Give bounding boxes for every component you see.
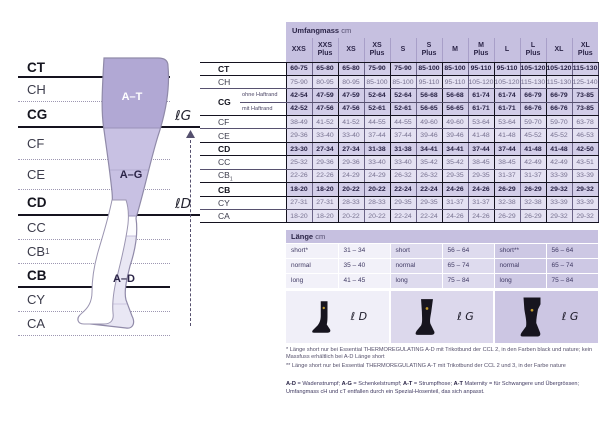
knee-sock-icon: [308, 299, 338, 335]
umfang-value: 29-35: [390, 196, 416, 209]
umfang-value: 43-51: [572, 156, 598, 169]
laenge-value: 56 – 64: [442, 243, 494, 258]
size-chart-page: CTCHCGCFCECDCCCB1CBCYCA A–T: [0, 0, 600, 424]
row-label-ct: CT: [200, 62, 286, 75]
laenge-value: 35 – 40: [338, 258, 390, 273]
footnote: ** Länge short nur bei Essential THERMOR…: [286, 363, 594, 370]
umfang-value: 29-32: [572, 210, 598, 223]
laenge-title: Länge cm: [286, 230, 598, 243]
umfang-value: 37-44: [364, 129, 390, 142]
umfang-value: 34-41: [416, 142, 442, 155]
row-label-cf: CF: [200, 116, 286, 129]
umfang-value: 66-76: [520, 102, 546, 115]
umfang-value: 37-44: [390, 129, 416, 142]
row-label-cy: CY: [200, 196, 286, 209]
haftrand-variant: mit Haftrand: [240, 102, 286, 115]
umfang-value: 44-55: [364, 116, 390, 129]
umfang-value: 49-60: [416, 116, 442, 129]
laenge-value: 75 – 84: [442, 273, 494, 288]
ad-region-label: A–D: [113, 273, 135, 285]
laenge-value: 65 – 74: [546, 258, 598, 273]
umfang-value: 41-52: [312, 116, 338, 129]
umfang-value: 33-39: [546, 169, 572, 183]
umfang-value: 26-29: [520, 183, 546, 196]
umfang-value: 29-32: [546, 183, 572, 196]
laenge-label: normal: [390, 258, 442, 273]
umfang-value: 24-26: [442, 210, 468, 223]
umfang-value: 45-52: [520, 129, 546, 142]
laenge-table: Länge cmshort*31 – 34short56 – 64short**…: [286, 230, 598, 289]
umfang-value: 41-48: [546, 142, 572, 155]
umfang-value: 80-95: [312, 75, 338, 88]
row-label-ch: CH: [200, 75, 286, 88]
umfang-value: 85-100: [442, 62, 468, 75]
row-label-cd: CD: [200, 142, 286, 155]
umfang-value: 24-26: [468, 210, 494, 223]
umfang-value: 28-33: [364, 196, 390, 209]
umfang-value: 73-85: [572, 89, 598, 102]
umfang-value: 31-37: [468, 196, 494, 209]
umfang-value: 33-40: [364, 156, 390, 169]
laenge-value: 75 – 84: [546, 273, 598, 288]
umfang-value: 27-31: [286, 196, 312, 209]
umfang-value: 29-32: [572, 183, 598, 196]
umfang-value: 85-100: [364, 75, 390, 88]
umfang-value: 75-90: [364, 62, 390, 75]
umfang-value: 29-36: [338, 156, 364, 169]
umfang-value: 61-74: [468, 89, 494, 102]
umfang-value: 52-61: [364, 102, 390, 115]
footer-segment: A-T: [454, 381, 463, 387]
row-label-cc: CC: [200, 156, 286, 169]
row-label-cb: CB: [200, 183, 286, 196]
umfang-value: 65-80: [312, 62, 338, 75]
umfang-value: 95-110: [442, 75, 468, 88]
thigh-sock-icon: [410, 297, 444, 337]
umfang-value: 66-79: [546, 89, 572, 102]
footer-segment: A-D: [286, 381, 296, 387]
umfang-value: 18-20: [286, 183, 312, 196]
laenge-value: 31 – 34: [338, 243, 390, 258]
umfang-value: 24-26: [468, 183, 494, 196]
umfang-value: 45-52: [546, 129, 572, 142]
umfang-value: 33-40: [312, 129, 338, 142]
length-box-ag: ℓ G: [391, 291, 494, 343]
umfang-value: 42-52: [286, 102, 312, 115]
umfang-value: 29-32: [546, 210, 572, 223]
umfang-value: 24-29: [338, 169, 364, 183]
umfang-value: 37-44: [468, 142, 494, 155]
row-label-cb1: CB1: [200, 169, 286, 183]
umfang-value: 22-26: [286, 169, 312, 183]
umfang-value: 35-42: [416, 156, 442, 169]
umfang-value: 95-110: [416, 75, 442, 88]
footer-segment: = Schenkelstrumpf;: [352, 381, 403, 387]
size-header-xxs-plus: XXSPlus: [312, 38, 338, 62]
umfang-value: 25-32: [286, 156, 312, 169]
laenge-label: short**: [494, 243, 546, 258]
umfang-value: 41-48: [468, 129, 494, 142]
umfang-value: 42-49: [520, 156, 546, 169]
size-header-xs: XS: [338, 38, 364, 62]
size-header-s: S: [390, 38, 416, 62]
length-dash-line: [190, 140, 191, 326]
umfang-value: 20-22: [338, 183, 364, 196]
umfang-value: 41-52: [338, 116, 364, 129]
length-box-at: ℓ G: [495, 291, 598, 343]
umfang-value: 125-140: [572, 75, 598, 88]
umfang-value: 27-31: [312, 196, 338, 209]
umfang-value: 32-38: [494, 196, 520, 209]
length-box-ag-label: ℓ G: [457, 310, 474, 323]
size-header-s-plus: SPlus: [416, 38, 442, 62]
umfang-value: 85-100: [416, 62, 442, 75]
umfang-value: 38-45: [494, 156, 520, 169]
size-header-l: L: [494, 38, 520, 62]
footnote: * Länge short nur bei Essential THERMORE…: [286, 347, 594, 362]
umfang-value: 42-50: [572, 142, 598, 155]
umfang-value: 53-64: [494, 116, 520, 129]
umfang-value: 20-22: [338, 210, 364, 223]
umfang-value: 44-55: [390, 116, 416, 129]
size-header-l-plus: LPlus: [520, 38, 546, 62]
umfang-value: 66-76: [546, 102, 572, 115]
umfang-value: 59-70: [546, 116, 572, 129]
umfang-title: Umfangmass cm: [286, 22, 598, 38]
row-label-ce: CE: [200, 129, 286, 142]
umfang-value: 29-35: [468, 169, 494, 183]
umfang-value: 33-40: [390, 156, 416, 169]
umfang-value: 75-90: [286, 75, 312, 88]
size-header-xl: XL: [546, 38, 572, 62]
footnotes: * Länge short nur bei Essential THERMORE…: [286, 347, 594, 370]
umfang-table: Umfangmass cmXXSXXSPlusXSXSPlusSSPlusMMP…: [200, 22, 599, 223]
umfang-value: 18-20: [312, 183, 338, 196]
umfang-value: 115-130: [520, 75, 546, 88]
size-header-xs-plus: XSPlus: [364, 38, 390, 62]
umfang-value: 47-56: [338, 102, 364, 115]
umfang-value: 31-37: [494, 169, 520, 183]
umfang-value: 63-78: [572, 116, 598, 129]
umfang-table-host: Umfangmass cmXXSXXSPlusXSXSPlusSSPlusMMP…: [200, 22, 598, 223]
umfang-value: 56-65: [442, 102, 468, 115]
umfang-value: 85-100: [390, 75, 416, 88]
umfang-value: 24-26: [442, 183, 468, 196]
umfang-value: 31-38: [390, 142, 416, 155]
umfang-value: 105-120: [546, 62, 572, 75]
umfang-value: 39-46: [442, 129, 468, 142]
umfang-value: 20-22: [364, 210, 390, 223]
umfang-value: 52-64: [364, 89, 390, 102]
umfang-value: 38-45: [468, 156, 494, 169]
length-box-at-label: ℓ G: [562, 310, 579, 323]
umfang-value: 49-60: [442, 116, 468, 129]
umfang-value: 61-71: [494, 102, 520, 115]
umfang-value: 29-35: [442, 169, 468, 183]
laenge-value: 56 – 64: [546, 243, 598, 258]
umfang-value: 33-40: [338, 129, 364, 142]
umfang-value: 46-53: [572, 129, 598, 142]
umfang-value: 47-59: [312, 89, 338, 102]
umfang-value: 31-38: [364, 142, 390, 155]
footer-segment: = Strumpfhose;: [412, 381, 453, 387]
tables-column: Umfangmass cmXXSXXSPlusXSXSPlusSSPlusMMP…: [200, 0, 598, 371]
at-region-label: A–T: [122, 91, 143, 103]
umfang-value: 56-65: [416, 102, 442, 115]
leg-measurement-diagram: CTCHCGCFCECDCCCB1CBCYCA A–T: [18, 58, 214, 348]
umfang-value: 39-46: [416, 129, 442, 142]
size-header-m-plus: MPlus: [468, 38, 494, 62]
umfang-value: 26-29: [494, 210, 520, 223]
umfang-value: 34-41: [442, 142, 468, 155]
umfang-value: 61-71: [468, 102, 494, 115]
laenge-label: long: [390, 273, 442, 288]
umfang-value: 75-90: [390, 62, 416, 75]
laenge-label: long: [494, 273, 546, 288]
umfang-value: 29-35: [416, 196, 442, 209]
row-label-cg: CG: [200, 89, 240, 116]
umfang-value: 31-37: [520, 169, 546, 183]
umfang-value: 22-24: [390, 210, 416, 223]
umfang-value: 61-74: [494, 89, 520, 102]
umfang-value: 27-34: [312, 142, 338, 155]
umfang-value: 33-39: [572, 196, 598, 209]
laenge-label: normal: [286, 258, 338, 273]
umfang-value: 32-38: [520, 196, 546, 209]
umfang-value: 56-68: [442, 89, 468, 102]
length-icon-boxes: ℓ D ℓ G ℓ G: [286, 291, 598, 343]
umfang-value: 23-30: [286, 142, 312, 155]
laenge-label: normal: [494, 258, 546, 273]
length-box-ad-label: ℓ D: [351, 310, 368, 323]
umfang-value: 38-49: [286, 116, 312, 129]
umfang-value: 37-44: [494, 142, 520, 155]
umfang-value: 35-42: [442, 156, 468, 169]
umfang-value: 27-34: [338, 142, 364, 155]
umfang-value: 22-24: [416, 183, 442, 196]
umfang-value: 20-22: [364, 183, 390, 196]
umfang-value: 33-39: [572, 169, 598, 183]
laenge-table-host: Länge cmshort*31 – 34short56 – 64short**…: [200, 230, 598, 289]
umfang-value: 22-26: [312, 169, 338, 183]
footer-legend: A-D = Wadenstrumpf; A-G = Schenkelstrump…: [286, 381, 592, 396]
umfang-value: 22-24: [416, 210, 442, 223]
umfang-value: 66-79: [520, 89, 546, 102]
umfang-value: 24-29: [364, 169, 390, 183]
umfang-value: 41-48: [494, 129, 520, 142]
umfang-value: 105-120: [520, 62, 546, 75]
laenge-label: short: [390, 243, 442, 258]
umfang-value: 95-110: [468, 62, 494, 75]
umfang-value: 42-54: [286, 89, 312, 102]
laenge-value: 65 – 74: [442, 258, 494, 273]
umfang-value: 115-130: [572, 62, 598, 75]
size-header-xxs: XXS: [286, 38, 312, 62]
size-header-xl-plus: XLPlus: [572, 38, 598, 62]
umfang-value: 26-29: [494, 183, 520, 196]
umfang-value: 47-59: [338, 89, 364, 102]
umfang-value: 31-37: [442, 196, 468, 209]
umfang-value: 95-110: [494, 62, 520, 75]
umfang-value: 41-48: [520, 142, 546, 155]
footer-segment: A-T: [403, 381, 412, 387]
umfang-value: 53-64: [468, 116, 494, 129]
umfang-value: 47-56: [312, 102, 338, 115]
pantyhose-icon: [515, 294, 549, 340]
umfang-value: 26-32: [416, 169, 442, 183]
row-label-ca: CA: [200, 210, 286, 223]
umfang-value: 26-32: [390, 169, 416, 183]
umfang-value: 26-29: [520, 210, 546, 223]
umfang-value: 42-49: [546, 156, 572, 169]
footer-segment: A-G: [342, 381, 352, 387]
umfang-value: 105-120: [494, 75, 520, 88]
umfang-value: 52-61: [390, 102, 416, 115]
umfang-value: 29-36: [312, 156, 338, 169]
umfang-value: 29-36: [286, 129, 312, 142]
ag-region-label: A–G: [120, 169, 143, 181]
length-box-ad: ℓ D: [286, 291, 389, 343]
umfang-value: 56-68: [416, 89, 442, 102]
laenge-value: 41 – 45: [338, 273, 390, 288]
umfang-value: 105-120: [468, 75, 494, 88]
umfang-value: 18-20: [286, 210, 312, 223]
umfang-value: 80-95: [338, 75, 364, 88]
umfang-value: 65-80: [338, 62, 364, 75]
umfang-value: 52-64: [390, 89, 416, 102]
size-header-m: M: [442, 38, 468, 62]
laenge-label: long: [286, 273, 338, 288]
umfang-value: 60-75: [286, 62, 312, 75]
umfang-value: 73-85: [572, 102, 598, 115]
laenge-label: short*: [286, 243, 338, 258]
umfang-value: 59-70: [520, 116, 546, 129]
umfang-value: 115-130: [546, 75, 572, 88]
umfang-value: 28-33: [338, 196, 364, 209]
haftrand-variant: ohne Haftrand: [240, 89, 286, 102]
footer-segment: = Wadenstrumpf;: [296, 381, 342, 387]
arrow-up-icon: [185, 130, 196, 139]
umfang-value: 33-39: [546, 196, 572, 209]
umfang-value: 18-20: [312, 210, 338, 223]
umfang-value: 22-24: [390, 183, 416, 196]
